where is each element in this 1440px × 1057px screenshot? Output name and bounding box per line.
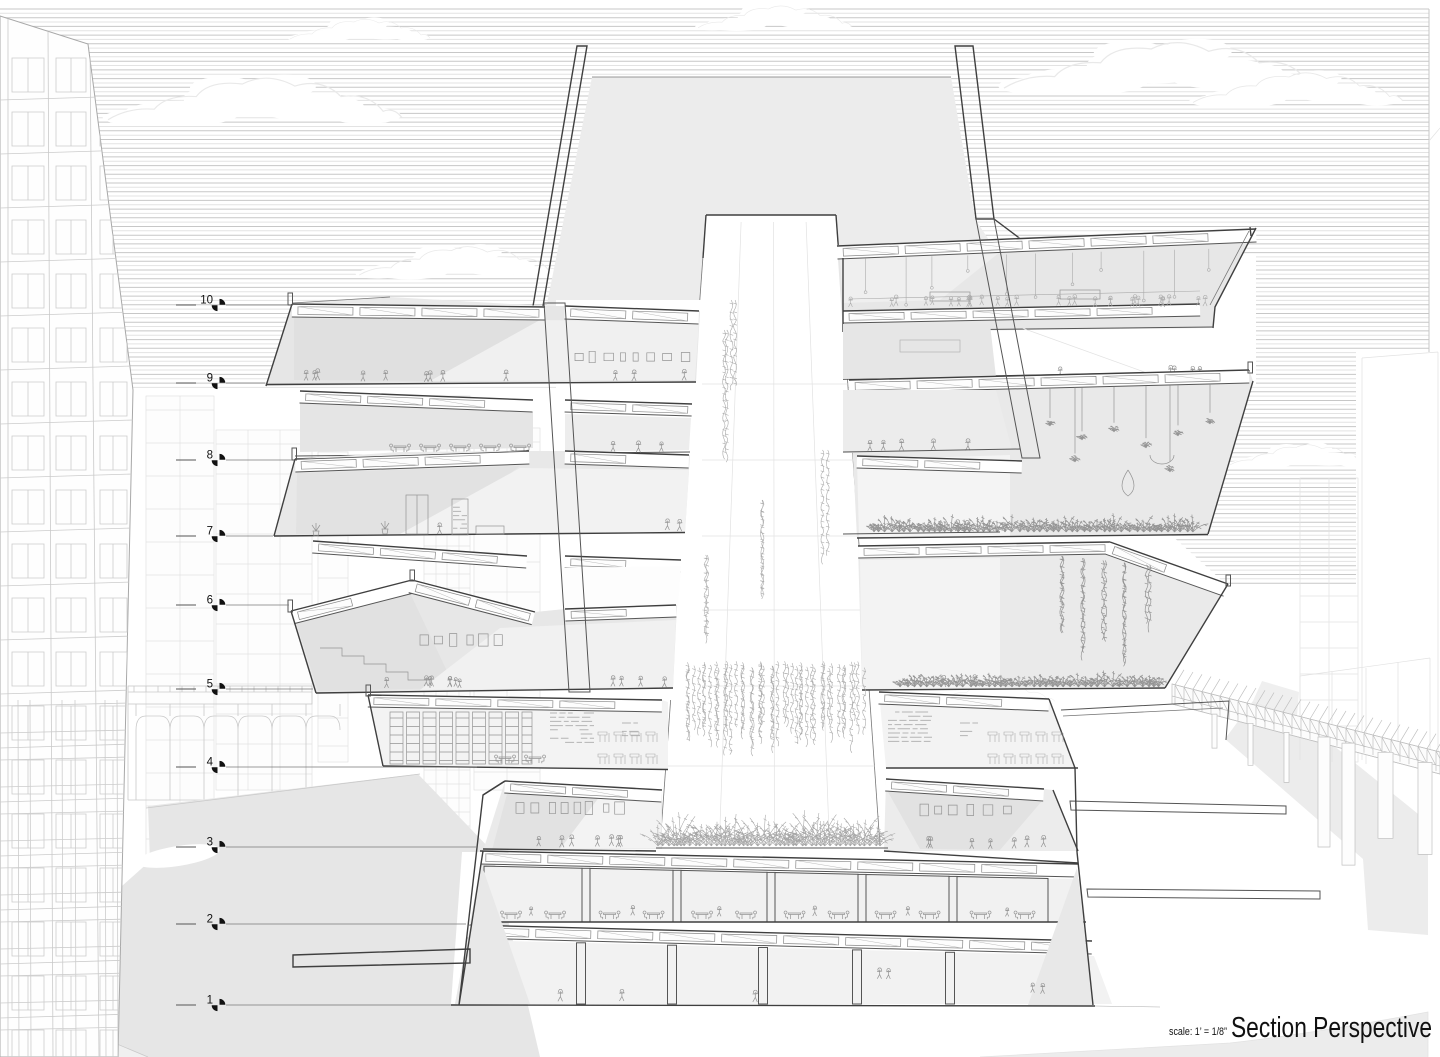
svg-text:8: 8 xyxy=(207,450,213,462)
svg-text:7: 7 xyxy=(207,526,213,538)
svg-text:4: 4 xyxy=(207,757,214,769)
svg-text:scale: 1’ = 1/8”: scale: 1’ = 1/8” xyxy=(1169,1026,1227,1038)
svg-text:5: 5 xyxy=(207,679,213,691)
svg-text:2: 2 xyxy=(207,914,213,926)
svg-text:6: 6 xyxy=(207,595,213,607)
svg-text:1: 1 xyxy=(207,995,213,1007)
svg-text:Section Perspective: Section Perspective xyxy=(1231,1012,1432,1044)
svg-text:9: 9 xyxy=(207,373,213,385)
svg-text:3: 3 xyxy=(207,837,213,849)
svg-text:10: 10 xyxy=(200,295,213,307)
